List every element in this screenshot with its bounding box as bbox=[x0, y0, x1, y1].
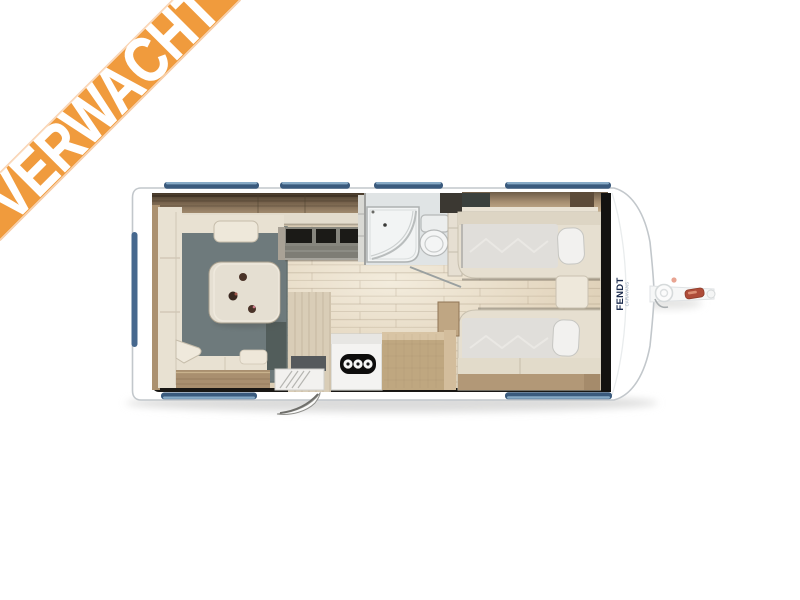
svg-text:CARAVANS: CARAVANS bbox=[625, 282, 630, 307]
